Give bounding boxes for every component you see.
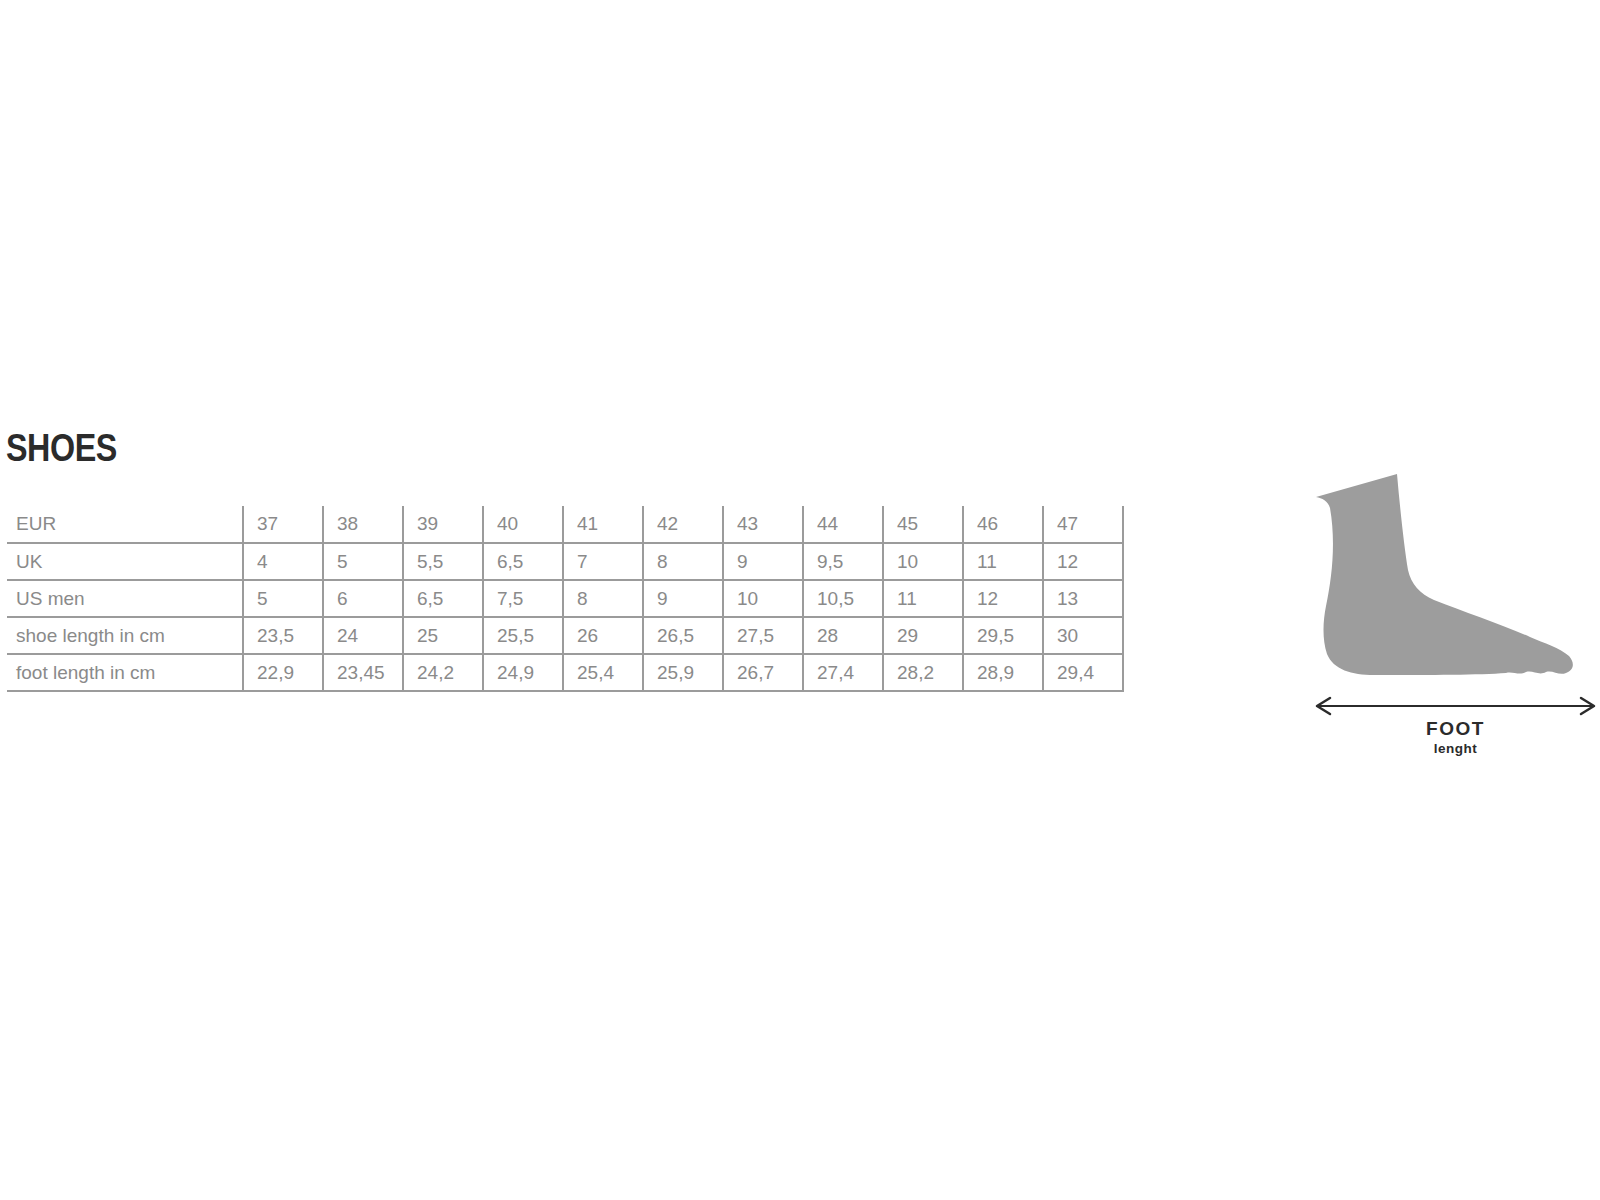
size-value-cell: 6,5: [403, 580, 483, 617]
size-value-cell: 24,9: [483, 654, 563, 691]
foot-silhouette: [1316, 474, 1573, 675]
size-value-cell: 43: [723, 506, 803, 543]
table-row: EUR3738394041424344454647: [7, 506, 1123, 543]
row-label: UK: [7, 543, 243, 580]
size-value-cell: 25,4: [563, 654, 643, 691]
size-value-cell: 6: [323, 580, 403, 617]
page-title: SHOES: [6, 429, 117, 467]
size-value-cell: 5,5: [403, 543, 483, 580]
foot-length-arrow: [1317, 698, 1594, 714]
size-value-cell: 26,5: [643, 617, 723, 654]
size-value-cell: 42: [643, 506, 723, 543]
row-label: US men: [7, 580, 243, 617]
size-value-cell: 28,2: [883, 654, 963, 691]
size-value-cell: 10,5: [803, 580, 883, 617]
size-value-cell: 45: [883, 506, 963, 543]
size-conversion-table: EUR3738394041424344454647UK455,56,57899,…: [7, 506, 1124, 692]
size-value-cell: 11: [883, 580, 963, 617]
size-value-cell: 28: [803, 617, 883, 654]
size-value-cell: 27,4: [803, 654, 883, 691]
size-value-cell: 10: [883, 543, 963, 580]
size-value-cell: 39: [403, 506, 483, 543]
size-value-cell: 27,5: [723, 617, 803, 654]
size-value-cell: 44: [803, 506, 883, 543]
size-value-cell: 5: [243, 580, 323, 617]
size-value-cell: 24,2: [403, 654, 483, 691]
size-value-cell: 23,45: [323, 654, 403, 691]
size-value-cell: 5: [323, 543, 403, 580]
table-row: US men566,57,5891010,5111213: [7, 580, 1123, 617]
size-value-cell: 4: [243, 543, 323, 580]
size-value-cell: 9: [643, 580, 723, 617]
size-value-cell: 12: [1043, 543, 1123, 580]
size-value-cell: 25,5: [483, 617, 563, 654]
size-value-cell: 24: [323, 617, 403, 654]
size-value-cell: 47: [1043, 506, 1123, 543]
size-value-cell: 8: [643, 543, 723, 580]
size-value-cell: 7: [563, 543, 643, 580]
size-value-cell: 23,5: [243, 617, 323, 654]
foot-diagram-labels: FOOT lenght: [1317, 719, 1594, 756]
size-value-cell: 22,9: [243, 654, 323, 691]
size-value-cell: 29,5: [963, 617, 1043, 654]
foot-length-diagram: FOOT lenght: [1280, 450, 1600, 760]
size-value-cell: 9,5: [803, 543, 883, 580]
size-value-cell: 30: [1043, 617, 1123, 654]
size-value-cell: 6,5: [483, 543, 563, 580]
size-value-cell: 12: [963, 580, 1043, 617]
size-value-cell: 25,9: [643, 654, 723, 691]
size-value-cell: 11: [963, 543, 1043, 580]
size-value-cell: 29: [883, 617, 963, 654]
size-value-cell: 26,7: [723, 654, 803, 691]
size-value-cell: 40: [483, 506, 563, 543]
size-value-cell: 9: [723, 543, 803, 580]
size-value-cell: 41: [563, 506, 643, 543]
size-value-cell: 37: [243, 506, 323, 543]
size-value-cell: 10: [723, 580, 803, 617]
table-row: shoe length in cm23,5242525,52626,527,52…: [7, 617, 1123, 654]
foot-label-primary: FOOT: [1317, 719, 1594, 738]
size-value-cell: 38: [323, 506, 403, 543]
size-value-cell: 8: [563, 580, 643, 617]
row-label: foot length in cm: [7, 654, 243, 691]
size-value-cell: 25: [403, 617, 483, 654]
size-value-cell: 46: [963, 506, 1043, 543]
size-value-cell: 7,5: [483, 580, 563, 617]
table-row: UK455,56,57899,5101112: [7, 543, 1123, 580]
size-value-cell: 26: [563, 617, 643, 654]
table-row: foot length in cm22,923,4524,224,925,425…: [7, 654, 1123, 691]
size-value-cell: 28,9: [963, 654, 1043, 691]
foot-label-secondary: lenght: [1317, 742, 1594, 756]
size-value-cell: 13: [1043, 580, 1123, 617]
row-label: EUR: [7, 506, 243, 543]
foot-silhouette-graphic: [1280, 450, 1600, 760]
row-label: shoe length in cm: [7, 617, 243, 654]
size-value-cell: 29,4: [1043, 654, 1123, 691]
